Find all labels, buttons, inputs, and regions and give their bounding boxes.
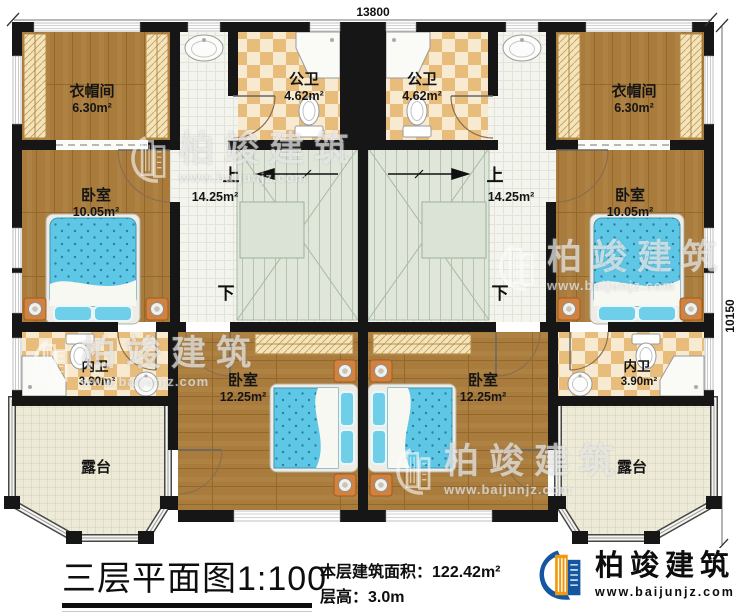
room-area-cloakroom-left: 6.30m² bbox=[72, 101, 112, 115]
room-label-terrace-left: 露台 bbox=[81, 458, 111, 476]
company-name: 柏竣建筑 bbox=[595, 552, 735, 581]
room-area-ensuite-right: 3.90m² bbox=[621, 376, 658, 388]
floor-area-value: 122.42m² bbox=[432, 564, 501, 581]
room-label-bedroom-upper-right: 卧室 bbox=[615, 186, 645, 204]
company-website: www.baijunjz.com bbox=[595, 585, 735, 599]
sink-icon bbox=[568, 372, 592, 396]
room-label-ensuite-left: 内卫 bbox=[82, 358, 109, 374]
stair-landing bbox=[422, 202, 486, 258]
sink-icon bbox=[185, 35, 223, 61]
room-label-bedroom-lower-right: 卧室 bbox=[468, 371, 498, 389]
dimension-right-value: 10150 bbox=[723, 299, 737, 333]
floor-height-row: 层高：3.0m bbox=[320, 585, 501, 610]
company-logo-icon bbox=[534, 547, 588, 603]
room-area-bedroom-upper-left: 10.05m² bbox=[73, 205, 120, 219]
room-label-ensuite-right: 内卫 bbox=[624, 358, 652, 374]
plan-scale: 1:100 bbox=[237, 560, 327, 598]
room-label-bedroom-upper-left: 卧室 bbox=[81, 186, 111, 204]
room-area-bedroom-upper-right: 10.05m² bbox=[607, 205, 654, 219]
floor-height-value: 3.0m bbox=[368, 589, 404, 606]
title-underline-shadow bbox=[62, 611, 312, 612]
stair-up-label-left: 上 bbox=[223, 166, 240, 185]
room-label-public-bath-right: 公卫 bbox=[407, 71, 437, 88]
stair-down-label-left: 下 bbox=[218, 284, 235, 303]
floor-plan-drawing: 衣帽间 6.30m² 衣帽间 6.30m² 公卫 4.62m² 公卫 4.62m… bbox=[0, 0, 750, 548]
stair-landing bbox=[240, 202, 304, 258]
sink-icon bbox=[503, 35, 541, 61]
room-label-cloakroom-left: 衣帽间 bbox=[69, 82, 114, 100]
company-logo: 柏竣建筑 www.baijunjz.com bbox=[534, 547, 735, 603]
sink-icon bbox=[134, 372, 158, 396]
stair-area-left: 14.25m² bbox=[192, 190, 239, 204]
stair-area-right: 14.25m² bbox=[488, 190, 535, 204]
title-underline bbox=[62, 603, 312, 608]
stair-down-label-right: 下 bbox=[492, 284, 509, 303]
floor-area-label: 本层建筑面积： bbox=[320, 564, 432, 581]
title-block: 三层平面图1:100 bbox=[62, 551, 327, 612]
room-label-public-bath-left: 公卫 bbox=[289, 71, 319, 88]
plan-title: 三层平面图1:100 bbox=[62, 551, 327, 600]
plan-info: 本层建筑面积：122.42m² 层高：3.0m bbox=[320, 560, 501, 610]
room-area-public-bath-left: 4.62m² bbox=[284, 89, 324, 103]
room-area-ensuite-left: 3.90m² bbox=[79, 376, 116, 388]
room-area-bedroom-lower-right: 12.25m² bbox=[460, 390, 507, 404]
bed-icon-upper-right bbox=[590, 214, 684, 324]
bed-icon-lower-left bbox=[270, 384, 358, 472]
bed-icon-upper-left bbox=[46, 214, 140, 324]
room-label-bedroom-lower-left: 卧室 bbox=[228, 371, 258, 389]
room-area-bedroom-lower-left: 12.25m² bbox=[220, 390, 267, 404]
room-label-terrace-right: 露台 bbox=[617, 458, 647, 476]
room-area-cloakroom-right: 6.30m² bbox=[614, 101, 654, 115]
plan-title-text: 三层平面图 bbox=[62, 560, 237, 598]
bed-icon-lower-right bbox=[368, 384, 456, 472]
floor-height-label: 层高： bbox=[320, 589, 368, 606]
room-label-cloakroom-right: 衣帽间 bbox=[611, 82, 656, 100]
dimension-top-value: 13800 bbox=[356, 5, 390, 19]
stair-up-label-right: 上 bbox=[487, 166, 504, 185]
floor-area-row: 本层建筑面积：122.42m² bbox=[320, 560, 501, 585]
floor-plan-page: 衣帽间 6.30m² 衣帽间 6.30m² 公卫 4.62m² 公卫 4.62m… bbox=[0, 0, 750, 616]
room-area-public-bath-right: 4.62m² bbox=[402, 89, 442, 103]
